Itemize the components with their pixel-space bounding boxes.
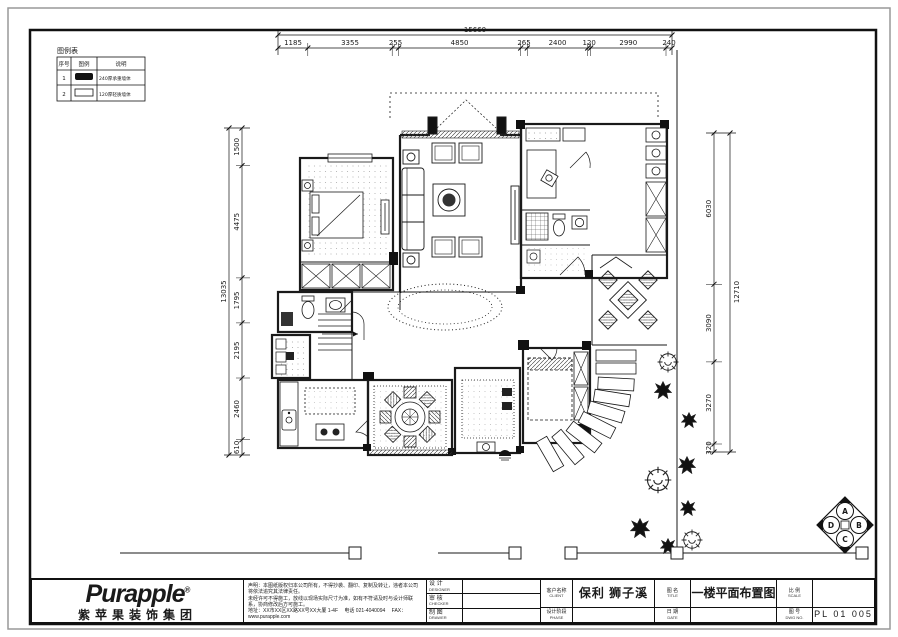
dim-total-height: 13035 [220, 280, 228, 302]
empty-cell [573, 608, 654, 622]
drawing-no-label: 图 号DWG NO. [777, 608, 812, 622]
dim-seg: 2195 [233, 342, 241, 360]
drawing-name-label: 图 名TITLE [655, 580, 690, 608]
dim-seg: 265 [517, 39, 530, 47]
signature-column: 设 计DESIGNER 审 核CHECKER 制 图DRAWER [427, 580, 541, 622]
company-logo: Purapple® 紫苹果装饰集团 [32, 580, 244, 622]
drawing-frame [30, 30, 876, 624]
nightstand [302, 180, 313, 191]
legend-row-no: 2 [62, 92, 66, 98]
bedroom-1 [302, 154, 389, 258]
dim-seg: 6030 [705, 200, 713, 218]
legend-col-desc: 说明 [115, 60, 127, 68]
terrace-door-swing [600, 257, 632, 268]
kitchen-door [356, 420, 368, 437]
signature-field [463, 594, 540, 607]
cabinet [646, 146, 666, 160]
garden-lamp [499, 450, 511, 460]
bedroom-2 [528, 348, 588, 420]
empty-cell [813, 580, 874, 608]
floor-plan-drawing: 图例表 序号 图例 说明 1 240厚承重墙体 2 120厚轻质墙体 15660 [0, 0, 898, 637]
signature-field [463, 580, 540, 593]
terrace-step [596, 350, 636, 361]
dim-seg: 4475 [233, 213, 241, 231]
elevation-marker: A B C D [817, 497, 873, 553]
dim-seg: 2990 [619, 39, 637, 47]
dim-seg: 3270 [705, 394, 713, 412]
stage-label: 设计阶段PHASE [541, 608, 572, 622]
pantry [274, 337, 308, 376]
shrub [679, 457, 695, 473]
compass-letter-c: C [842, 535, 848, 544]
legend-symbol-light-wall [75, 89, 93, 96]
dim-total-width: 15660 [464, 26, 486, 34]
toilet [554, 220, 565, 236]
legend-title: 图例表 [57, 46, 78, 55]
sign-label-en: DESIGNER [429, 588, 462, 592]
dim-seg: 120 [583, 39, 596, 47]
dim-seg: 3090 [705, 314, 713, 332]
legend-col-symbol: 图例 [78, 60, 90, 68]
living-room [402, 143, 519, 267]
dim-seg: 1500 [233, 138, 241, 156]
dim-total-height: 12710 [733, 281, 741, 303]
stove [316, 424, 344, 440]
legend-row-no: 1 [62, 76, 66, 82]
garden-trees [631, 352, 702, 553]
washer [527, 250, 540, 263]
dim-seg: 1795 [233, 291, 241, 309]
signature-field [463, 609, 540, 622]
dim-seg: 1185 [284, 39, 302, 47]
disclaimer: 声明：本图纸版权归本公司所有，不得抄袭、翻印、复制及转让，违者本公司将依法追究其… [244, 580, 427, 622]
end-table [403, 150, 419, 164]
nightstand [302, 240, 313, 251]
dim-seg: 2400 [549, 39, 567, 47]
terrace [596, 271, 657, 374]
sign-label-en: DRAWER [429, 616, 462, 620]
dim-seg: 3355 [341, 39, 359, 47]
shrub [631, 519, 649, 537]
tea-room [462, 380, 514, 452]
title-grid: 客户名称CLIENT 设计阶段PHASE 保利 狮子溪 图 名TITLE 日 期… [541, 580, 874, 622]
legend-symbol-solid-wall [75, 73, 93, 80]
drawing-number: PL 01 005 [813, 608, 874, 622]
sign-row-designer: 设 计DESIGNER [427, 580, 540, 594]
ceiling-feature [388, 284, 502, 330]
study-door [570, 152, 590, 168]
shower [526, 213, 548, 240]
terrace-chair [599, 271, 617, 289]
toilet [302, 302, 314, 319]
end-table [403, 253, 419, 267]
shrub [681, 501, 695, 515]
sign-row-drawer: 制 图DRAWER [427, 609, 540, 622]
corridor-right [600, 128, 666, 268]
dining-room [368, 386, 452, 455]
dimension-right: 12710 6030 3090 3270 320 [705, 131, 741, 455]
bookshelf [526, 128, 560, 141]
empty-cell [691, 608, 776, 622]
date-label: 日 期DATE [655, 608, 690, 622]
cad-sheet: 图例表 序号 图例 说明 1 240厚承重墙体 2 120厚轻质墙体 15660 [0, 0, 898, 637]
sign-label-en: CHECKER [429, 602, 462, 606]
disclaimer-line: 未经许可不得施工，放线以现场实际尺寸为准，如有不符请及时与设计师联系，协商修改后… [248, 596, 422, 609]
project-name: 保利 狮子溪 [573, 580, 654, 608]
dim-seg: 320 [705, 441, 713, 454]
tree [645, 467, 672, 494]
dim-seg: 4850 [451, 39, 469, 47]
dim-seg: 2460 [233, 400, 241, 418]
company-name: 紫苹果装饰集团 [78, 609, 197, 621]
address-line: 地址：XX市XX区XX路XX号XX大厦 1-4F 电话 021-4040094 … [248, 608, 422, 621]
kitchen [280, 382, 368, 446]
compass-letter-a: A [842, 507, 848, 516]
compass-letter-d: D [828, 521, 834, 530]
scale-label: 比 例SCALE [777, 580, 812, 608]
dim-seg: 240 [662, 39, 675, 47]
stair-arrow [353, 332, 358, 337]
dim-seg: 255 [389, 39, 402, 47]
title-block: Purapple® 紫苹果装饰集团 声明：本图纸版权归本公司所有，不得抄袭、翻印… [30, 578, 876, 624]
legend-row-desc: 240厚承重墙体 [99, 75, 131, 82]
drawing-title: 一楼平面布置图 [691, 580, 776, 608]
terrace-chair [639, 311, 657, 329]
shrub [682, 413, 696, 427]
terrace-step [596, 363, 636, 374]
compass-letter-b: B [856, 521, 862, 530]
terrace-chair [599, 311, 617, 329]
hallway [388, 284, 502, 330]
legend-row-desc: 120厚轻质墙体 [99, 91, 131, 98]
dimension-left: 13035 1500 4475 1795 2195 2460 610 [220, 126, 250, 458]
roof-overhang [390, 93, 658, 120]
logo-wordmark: Purapple® [86, 582, 190, 607]
shrub [655, 382, 671, 398]
disclaimer-line: 声明：本图纸版权归本公司所有，不得抄袭、翻印、复制及转让，违者本公司将依法追究其… [248, 583, 422, 596]
registered-mark-icon: ® [185, 585, 190, 594]
terrace-chair [639, 271, 657, 289]
laundry [525, 248, 587, 275]
bathroom-1 [281, 296, 352, 326]
cabinet [563, 128, 585, 141]
floor-drain [281, 312, 293, 326]
island [305, 388, 355, 414]
sign-row-checker: 审 核CHECKER [427, 594, 540, 608]
dim-seg: 610 [233, 441, 241, 454]
study [526, 128, 590, 198]
entry-porch [402, 100, 519, 138]
cabinet [646, 128, 666, 142]
legend-table: 图例表 序号 图例 说明 1 240厚承重墙体 2 120厚轻质墙体 [57, 46, 145, 101]
tree [682, 530, 703, 551]
bed [310, 192, 363, 238]
cabinet [646, 164, 666, 178]
bathroom-2 [526, 213, 587, 240]
client-label: 客户名称CLIENT [541, 580, 572, 608]
wardrobe [302, 264, 390, 288]
entry-door-swing [437, 100, 496, 128]
legend-col-no: 序号 [58, 60, 70, 68]
tree [658, 352, 679, 373]
sofa [402, 168, 424, 250]
